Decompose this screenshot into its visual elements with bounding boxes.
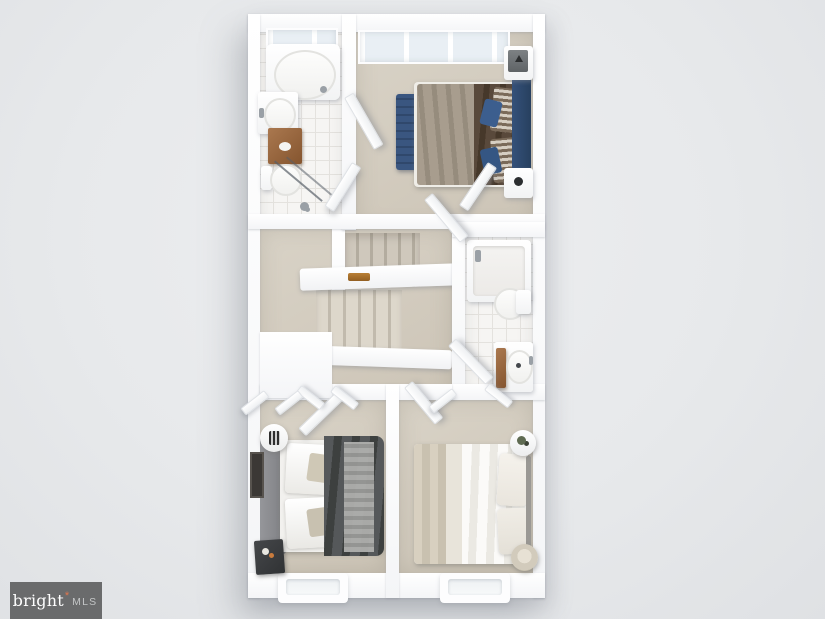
wall-hallbath-west xyxy=(452,222,465,398)
vanity-faucet-icon xyxy=(259,108,264,118)
bedroom-three-window xyxy=(440,573,510,603)
dresser-lamp-icon xyxy=(515,55,523,62)
floor-plan-render: bright*MLS xyxy=(0,0,825,619)
hall-tub-fixture-icon xyxy=(475,250,481,262)
bedroom-two-window xyxy=(278,573,348,603)
brightmls-suffix-text: MLS xyxy=(72,596,97,608)
hall-faucet-icon xyxy=(529,356,533,365)
side-table-striped-box xyxy=(269,431,280,445)
vanity-sink xyxy=(264,98,296,132)
nightstand-flowers-icon xyxy=(262,548,269,555)
wall-ensuite-divider xyxy=(342,14,356,230)
shower-head-icon xyxy=(300,202,309,211)
brightmls-asterisk-icon: * xyxy=(65,590,69,602)
wood-handrail xyxy=(348,273,370,281)
cabinet-towel xyxy=(279,142,291,151)
bedroom-three-headboard xyxy=(526,456,531,556)
closet-block-bedroom-two xyxy=(260,332,332,398)
brightmls-watermark: bright*MLS xyxy=(10,582,102,619)
nightstand-lamp-icon xyxy=(514,177,523,186)
bedroom-two-throw-blanket xyxy=(344,442,374,552)
master-headboard xyxy=(512,76,531,183)
master-duvet-gray xyxy=(417,84,474,185)
hall-vanity-cabinet xyxy=(496,348,506,388)
master-bedroom-window-bay xyxy=(358,30,510,64)
bedroom-three-basket xyxy=(511,544,538,571)
side-table-plant-icon xyxy=(517,436,526,445)
wall-picture-frame xyxy=(250,452,264,498)
bedroom-two-nightstand xyxy=(254,539,285,575)
floorplan xyxy=(248,14,545,598)
hall-sink-drain xyxy=(516,363,521,368)
hall-toilet-tank xyxy=(516,290,531,314)
bedroom-three-folded-blanket xyxy=(414,444,446,564)
tub-faucet-icon xyxy=(320,86,327,93)
wall-right xyxy=(533,14,545,598)
brightmls-brand-text: bright xyxy=(13,591,64,610)
wall-bedroom-divider xyxy=(386,384,399,598)
bedroom-three-pillow-1 xyxy=(496,453,530,507)
